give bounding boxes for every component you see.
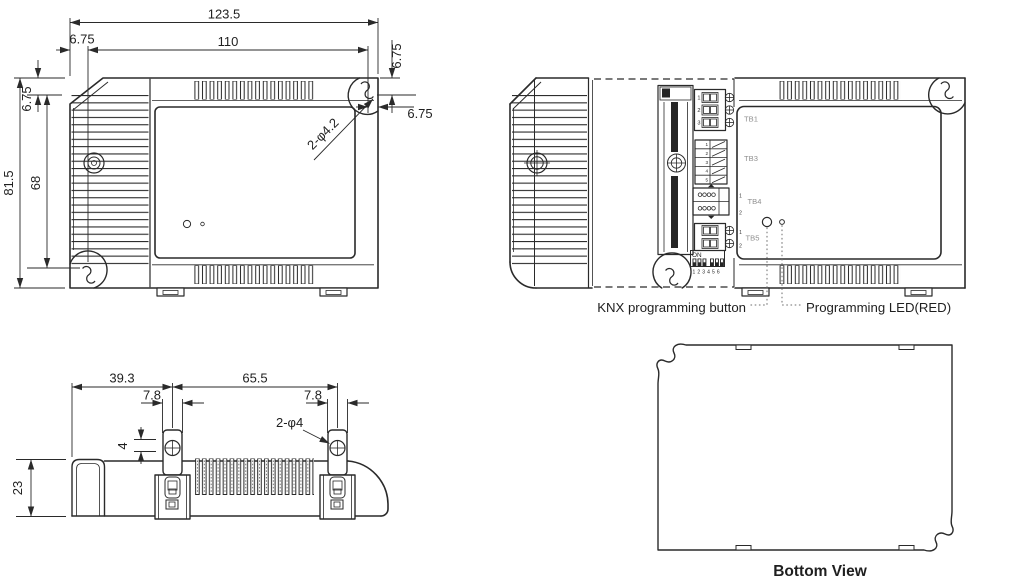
terminal-tb1: 1 2 3 — [695, 90, 734, 131]
din-rail-tabs — [742, 288, 932, 296]
hole-callout: 2-φ4 — [276, 415, 303, 430]
dim-left-section: 39.3 — [109, 371, 134, 386]
side-vent-fins — [194, 459, 314, 496]
hole-callout: 2-φ4.2 — [304, 115, 342, 153]
tb1-label: TB1 — [744, 115, 758, 124]
corner-slot-top-right — [929, 78, 965, 114]
internal-view: 1 2 3 1 2 3 4 5 — [510, 78, 965, 315]
dip-on-label: ON — [692, 252, 702, 259]
bottom-view-caption: Bottom View — [773, 563, 868, 580]
tb4-pin-label: 2 — [739, 211, 742, 217]
tb1-pin-label: 1 — [697, 96, 700, 102]
top-view-dimensions: 123.5 110 6.75 81.5 6.75 68 6.75 6.75 2-… — [1, 7, 433, 289]
dim-offset-right-top: 6.75 — [389, 43, 404, 68]
dim-offset-top: 6.75 — [19, 86, 34, 111]
dip-switch: ON 1 2 3 4 5 6 — [691, 251, 725, 276]
vent-slots-top — [779, 81, 901, 100]
dim-offset: 4 — [115, 442, 130, 449]
tb3-pin-label: 2 — [705, 151, 708, 156]
knx-button-label: KNX programming button — [597, 300, 746, 315]
dim-offset-left: 6.75 — [69, 32, 94, 47]
dim-hole-span-width: 110 — [218, 34, 239, 49]
programming-led — [780, 220, 785, 225]
button-mark — [183, 220, 190, 227]
vent-slots-bottom — [193, 266, 314, 285]
tb5-label: TB5 — [746, 234, 760, 243]
tb3-label: TB3 — [744, 154, 758, 163]
terminal-tb3: 1 2 3 4 5 — [695, 140, 727, 184]
tb3-pin-label: 3 — [705, 160, 708, 165]
tb1-pin-label: 2 — [697, 108, 700, 114]
dim-right-section: 65.5 — [242, 371, 267, 386]
drawing-canvas: 123.5 110 6.75 81.5 6.75 68 6.75 6.75 2-… — [0, 0, 1024, 588]
bottom-view-outline — [657, 344, 953, 551]
mounting-bracket-right — [320, 430, 355, 519]
terminal-tb4 — [693, 184, 729, 219]
vent-slots-top — [193, 81, 314, 100]
dip-levers — [693, 259, 724, 267]
inner-cover — [737, 107, 941, 260]
tb3-pin-label: 5 — [705, 177, 708, 182]
din-rail-tabs — [157, 288, 347, 296]
top-view: 123.5 110 6.75 81.5 6.75 68 6.75 6.75 2-… — [1, 7, 433, 297]
bottom-view-tabs — [736, 345, 914, 550]
dim-slot-left: 7.8 — [143, 388, 161, 403]
side-view: 39.3 65.5 7.8 7.8 4 23 2-φ4 — [10, 371, 388, 520]
heatsink-fins — [512, 95, 587, 268]
dim-slot-right: 7.8 — [304, 388, 322, 403]
dim-overall-height: 81.5 — [1, 170, 16, 195]
terminal-tb5 — [695, 224, 734, 251]
technical-drawing-page: 123.5 110 6.75 81.5 6.75 68 6.75 6.75 2-… — [0, 0, 1024, 588]
tb4-pin-label: 1 — [739, 194, 742, 200]
cover-labels: TB1 TB3 1 TB4 2 1 TB5 2 — [739, 115, 761, 250]
dim-hole-span-height: 68 — [28, 176, 43, 190]
bottom-view: Bottom View — [657, 344, 953, 580]
pcb-connector-rail — [658, 86, 693, 255]
tb4-label: TB4 — [748, 197, 762, 206]
tb3-pin-label: 4 — [705, 169, 708, 174]
terminal-blocks: 1 2 3 1 2 3 4 5 — [691, 90, 734, 276]
heatsink-fins — [72, 95, 149, 268]
tb1-pin-label: 3 — [697, 121, 700, 127]
tb5-pin-label: 2 — [739, 244, 742, 250]
dim-overall-width: 123.5 — [208, 7, 241, 22]
top-view-body — [70, 78, 378, 296]
led-mark — [201, 222, 205, 226]
programming-led-label: Programming LED(RED) — [806, 300, 951, 315]
dim-offset-right-side: 6.75 — [407, 106, 432, 121]
tb3-pin-label: 1 — [705, 142, 708, 147]
dim-height: 23 — [10, 481, 25, 495]
knx-programming-button — [762, 217, 771, 226]
internal-view-body — [510, 78, 965, 296]
corner-slot-bottom-left — [653, 253, 691, 288]
dip-numbers: 1 2 3 4 5 6 — [693, 270, 720, 276]
tb5-pin-label: 1 — [739, 230, 742, 236]
vent-slots-bottom — [779, 266, 901, 285]
mounting-bracket-left — [155, 430, 190, 519]
